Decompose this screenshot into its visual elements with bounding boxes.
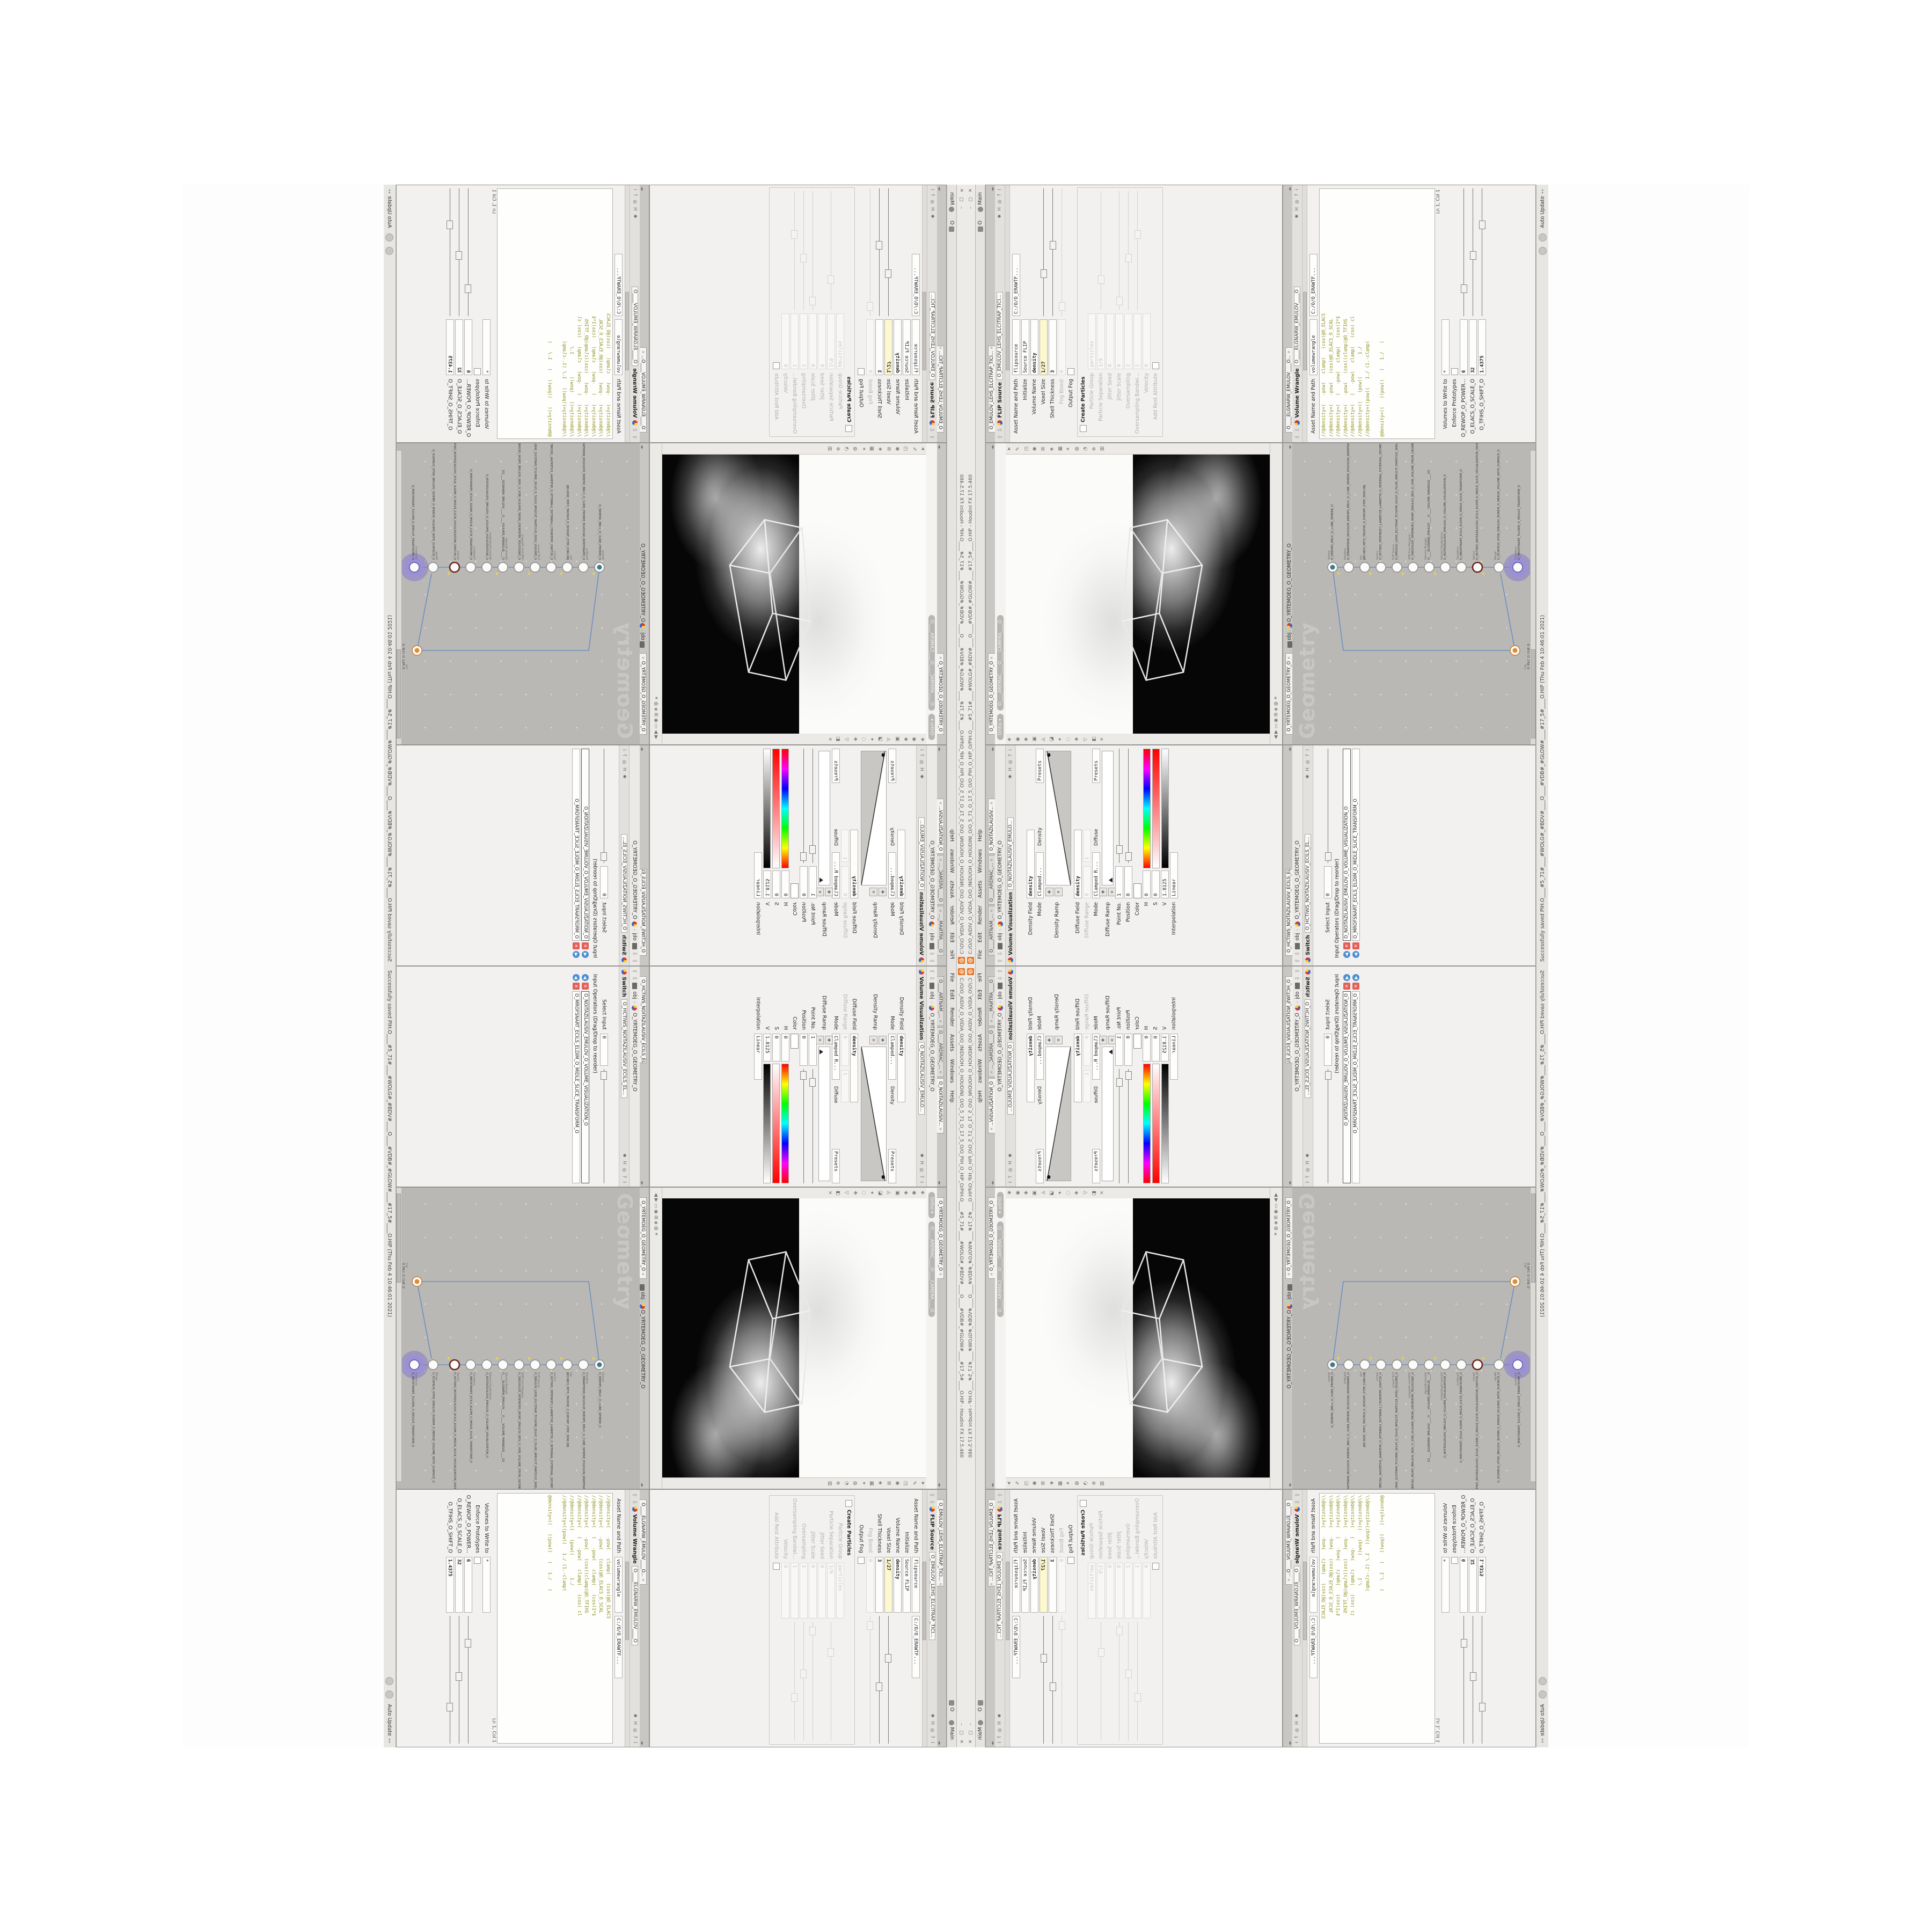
menu-assets[interactable]: Assets [949, 1030, 955, 1056]
menu-windows[interactable]: Windows [949, 1055, 955, 1087]
position-input[interactable]: 0 [1124, 866, 1132, 898]
network-canvas[interactable]: Geometry [397, 1188, 640, 1489]
voxel-size-input[interactable]: 1/27 [884, 1557, 892, 1613]
node-name-field[interactable]: O____ELGNARW_EMULOV____O [632, 1566, 638, 1645]
shell-thickness-input[interactable]: 3 [1049, 1557, 1057, 1613]
close-icon[interactable]: ✕ [938, 858, 942, 861]
pane-tab-mantra[interactable]: O____ARTNAM_...✕ [937, 906, 944, 956]
reorder-icon[interactable]: ◀ [573, 974, 580, 981]
power-slider[interactable] [1460, 188, 1467, 316]
nav-up-icon[interactable]: ⇧ [997, 435, 1004, 440]
update-mode-select[interactable]: Auto Update◂ ▸ [387, 189, 393, 228]
close-icon[interactable]: ✕ [990, 656, 994, 660]
fog-boost-input[interactable]: 0 [866, 1557, 874, 1613]
nav-up-icon[interactable]: ⇧ [997, 1492, 1004, 1497]
network-hscrollbar[interactable] [397, 451, 402, 744]
node-label[interactable]: VDB from PolygonsO_SNOGYLOP_YRTEMOEG_MOR… [517, 443, 524, 560]
node-label[interactable]: FLIP SourceO_EMULOV_LEHS_ELCITRAP_TICILP… [533, 1372, 540, 1489]
node-label[interactable]: FLIP SourceO_EMULOV_LEHS_ELCITRAP_TICILP… [1392, 1372, 1399, 1489]
nav-down-icon[interactable]: ⇩ [997, 976, 1004, 980]
select-input-slider[interactable] [1324, 749, 1331, 863]
position-slider[interactable] [800, 749, 807, 863]
power-input[interactable]: 6 [1460, 319, 1468, 375]
voxel-size-slider[interactable] [885, 188, 892, 316]
node-label[interactable]: SwitchO_HCTIWS_YRTEMOEG_LANRETXE_LANRETN… [1376, 1372, 1383, 1489]
voxel-size-input[interactable]: 1/27 [1040, 1557, 1048, 1613]
node-name-field[interactable]: O_EMULOV_LEHS_ELCITRAP_TICI... [929, 1552, 935, 1640]
delete-icon[interactable]: ✕ [1343, 942, 1350, 949]
menu-edit[interactable]: Edit [949, 986, 955, 1004]
select-input-slider[interactable] [1324, 1069, 1331, 1183]
input-operator-item[interactable]: ◀ ✕ O_MROFSNART_ECILS_ELDIM_O_MIDLE_SLIC… [572, 749, 581, 958]
pane-gadget[interactable]: ◂▸ [937, 1483, 942, 1487]
ramp-add-button[interactable]: ✚ [1045, 1036, 1053, 1044]
menu-render[interactable]: Render [977, 1004, 983, 1030]
asset-name-input[interactable]: flipsource [912, 319, 920, 375]
diffuse-presets-button[interactable]: Presets [1092, 1149, 1100, 1183]
breadcrumb-obj[interactable]: obj [929, 933, 935, 940]
node-label[interactable]: SphereO_EREHPS_EBUC_O_CUBE_SPHERE_O [597, 1372, 604, 1428]
point-slider[interactable] [1116, 749, 1123, 863]
particle-separation-slider[interactable] [1097, 1622, 1104, 1741]
oversampling-slider[interactable] [800, 191, 807, 310]
fog-boost-input[interactable]: 0 [866, 319, 874, 375]
node-name-field[interactable]: O_EMULOV_LEHS_ELCITRAP_TICI... [997, 292, 1003, 380]
close-icon[interactable]: ✕ [990, 802, 994, 805]
node-label[interactable]: Volume VisualizationO_NOITAZILAUSIV_EMUL… [1440, 474, 1447, 560]
menu-help[interactable]: Help [977, 825, 983, 845]
jitter-seed-input[interactable]: 0 [1106, 313, 1114, 369]
scale-slider[interactable] [1469, 1616, 1476, 1744]
oversampling-bandwidth-input[interactable]: 1 [1133, 313, 1141, 369]
param-hscrollbar[interactable] [1302, 185, 1307, 442]
pane-tab-scene[interactable]: O_YRTEMOEG_O_GEOMETRY_O✕ [937, 653, 944, 735]
shift-input[interactable]: 1.4375 [1478, 319, 1486, 375]
close-icon[interactable]: ✕ [1287, 1272, 1291, 1276]
nav-down-icon[interactable]: ⇩ [1294, 976, 1301, 980]
input-operator-item[interactable]: ◀ ✕ O_MROFSNART_ECILS_ELDIM_O_MIDLE_SLIC… [1351, 974, 1360, 1183]
window-buttons[interactable]: – ▢ ✕ [968, 1723, 974, 1745]
close-icon[interactable]: ✕ [990, 1020, 994, 1023]
viewport-right-toolbar[interactable]: ➤ ✎ ◳ ◉ ⊞ ◈ ▦ ✶ ◍ ◔ ⊕ ▥ [1006, 443, 1270, 455]
shift-slider[interactable] [1479, 1616, 1485, 1744]
menu-extra-label[interactable]: O [977, 216, 983, 236]
oversampling-bandwidth-slider[interactable] [1134, 191, 1141, 310]
nav-up-icon[interactable]: ⇧ [997, 969, 1004, 974]
jitter-seed-input[interactable]: 0 [818, 1563, 826, 1619]
position-slider[interactable] [1125, 1069, 1132, 1183]
menu-edit[interactable]: Edit [977, 986, 983, 1004]
asset-name-input[interactable]: volumewrangle [614, 319, 623, 375]
select-input-slider[interactable] [601, 1069, 608, 1183]
velocity-input[interactable]: 0 [781, 313, 789, 369]
velocity-input[interactable]: 0 [781, 1563, 789, 1619]
diffuse-field-input[interactable]: density [850, 830, 858, 898]
close-icon[interactable]: ✕ [938, 1272, 942, 1276]
breadcrumb-obj[interactable]: obj [640, 1292, 646, 1299]
pane-tab-camera[interactable]: O____AREMAC_...✕ [937, 855, 944, 905]
node-label[interactable]: TransformO_MROFSNART_TLUSER_O_RESULT_TRA… [1514, 485, 1521, 560]
point-no-input[interactable]: 1 [809, 866, 817, 898]
ramp-del-button[interactable]: ✕ [816, 888, 824, 896]
nav-down-icon[interactable]: ⇩ [631, 952, 638, 956]
pane-tab-visualization[interactable]: O_NOITAZILAUSIV...✕ [988, 1078, 995, 1134]
oversampling-slider[interactable] [1125, 191, 1132, 310]
power-input[interactable]: 6 [464, 319, 472, 375]
fog-boost-slider[interactable] [867, 188, 874, 316]
close-icon[interactable]: ✕ [938, 909, 942, 912]
network-canvas[interactable]: Geometry [397, 443, 640, 744]
header-icons[interactable]: ✱ H ◎ ? i [1305, 1153, 1311, 1184]
value-slider[interactable] [1161, 1064, 1169, 1183]
desktop-tab-main[interactable]: Main [977, 188, 983, 216]
cook-icon[interactable] [386, 1677, 394, 1685]
viewport-right-toolbar[interactable]: ➤ ✎ ◳ ◉ ⊞ ◈ ▦ ✶ ◍ ◔ ⊕ ▥ [1006, 1477, 1270, 1489]
interpolation-select[interactable]: Linear [1170, 1034, 1178, 1080]
param-hscrollbar[interactable] [922, 185, 927, 442]
voxel-size-input[interactable]: 1/27 [1040, 319, 1048, 375]
nav-down-icon[interactable]: ⇩ [997, 1499, 1004, 1504]
menu-assets[interactable]: Assets [977, 1030, 983, 1056]
pane-gadget[interactable]: ◂▸ [640, 187, 645, 191]
initialize-select[interactable]: Source FLIP [903, 319, 911, 375]
velocity-input[interactable]: 0 [1143, 1563, 1151, 1619]
node-label[interactable]: PolyWireO_EMARFERIW_NOGYLOP_EREHPS_EBUC_… [581, 443, 588, 560]
breadcrumb-geometry[interactable]: O_YRTEMOEG_O_GEOMETRY_O [1294, 840, 1300, 919]
camera-select-pill[interactable]: O____AREMAC____O____CAMERA____O [928, 615, 935, 711]
viewport-canvas[interactable] [662, 454, 926, 734]
memory-icon[interactable] [386, 233, 394, 241]
diffuse-ramp-widget[interactable] [1102, 1046, 1114, 1181]
ramp-del-button[interactable]: ✕ [1055, 1036, 1063, 1044]
ramp-add-button[interactable]: ✚ [1099, 1036, 1107, 1044]
scale-input[interactable]: 32 [455, 319, 463, 375]
asset-name-input[interactable]: flipsource [912, 1557, 920, 1613]
point-no-input[interactable]: 1 [1115, 866, 1123, 898]
input-operator-item[interactable]: ◀ ✕ O_MROFSNART_ECILS_ELDIM_O_MIDLE_SLIC… [1351, 749, 1360, 958]
header-icons[interactable]: ✱ H ◎ ? i [632, 188, 638, 218]
ramp-add-button[interactable]: ✚ [879, 1036, 887, 1044]
nav-up-icon[interactable]: ⇧ [631, 969, 638, 974]
node-label[interactable]: SphereO_EREHPS_EBUC_O_CUBE_SPHERE_O [597, 504, 604, 560]
reorder-icon[interactable]: ◀ [582, 951, 589, 958]
node-label[interactable]: Volume WrangleO____ELGNARW_EMULOV____O__… [1424, 470, 1431, 560]
shell-thickness-input[interactable]: 3 [875, 1557, 883, 1613]
oversampling-bandwidth-input[interactable]: 1 [791, 313, 799, 369]
node-name-field[interactable]: O_NOITAZILAUSIV_EMULO... [1007, 1042, 1014, 1115]
oversampling-input[interactable]: 2 [1124, 1563, 1132, 1619]
close-icon[interactable]: ✕ [641, 1578, 645, 1582]
viewport-right-toolbar[interactable]: ➤ ✎ ◳ ◉ ⊞ ◈ ▦ ✶ ◍ ◔ ⊕ ▥ [662, 443, 926, 455]
voxel-size-slider[interactable] [1040, 188, 1047, 316]
update-mode-select[interactable]: Auto Update◂ ▸ [1540, 1704, 1546, 1743]
shell-thickness-input[interactable]: 3 [1049, 319, 1057, 375]
reorder-icon[interactable]: ◀ [1343, 974, 1350, 981]
pane-gadget[interactable]: ◂▸ [640, 1181, 645, 1185]
menu-render[interactable]: Render [949, 1004, 955, 1030]
jitter-scale-input[interactable]: 0 [809, 1563, 817, 1619]
node-name-field[interactable]: O_HCTIWS_NOITAZILAUSIV_ECILS_EL... [1305, 834, 1311, 933]
nav-down-icon[interactable]: ⇩ [997, 428, 1004, 433]
breadcrumb-geometry[interactable]: O_YRTEMOEG_O_GEOMETRY_O [1294, 1013, 1300, 1092]
asset-path-input[interactable]: C:/O/O_ERAWTF... [1309, 1616, 1318, 1678]
menu-extra-label[interactable]: O [949, 1696, 955, 1716]
menu-file[interactable]: File [949, 946, 955, 963]
hue-slider[interactable] [1143, 1064, 1151, 1183]
breadcrumb-obj[interactable]: obj [632, 933, 638, 940]
pane-gadget[interactable]: ◂▸ [1287, 1181, 1292, 1185]
density-field-input[interactable]: density [1027, 1034, 1035, 1102]
particle-separation-input[interactable]: 1/9 [1097, 313, 1105, 369]
pane-tab-camera[interactable]: O____AREMAC_...✕ [988, 1027, 995, 1077]
shell-thickness-input[interactable]: 3 [875, 319, 883, 375]
menu-help[interactable]: Help [949, 825, 955, 845]
node-label[interactable]: SwitchO_HCTIWS_NOITAZILAUSIV_ECILS_ELDIM… [1473, 443, 1480, 560]
scale-slider[interactable] [456, 188, 463, 316]
node-label[interactable]: PolyWireO_EMARFERIW_NOGYLOP_EREHPS_EBUC_… [1344, 1372, 1351, 1489]
add-rest-checkbox[interactable] [773, 362, 780, 369]
title-bar[interactable]: @ C:/O/O_AIDIV_O_VIDIA_O/O_INIDUOH_O_HOU… [966, 966, 976, 1747]
volume-name-input[interactable]: density [1030, 1557, 1038, 1613]
interpolation-select[interactable]: Linear [754, 852, 762, 898]
input-operator-item[interactable]: ◀ ✕ O_NOITAZILAUSIV_EMULOV_O_VOLUME_VISU… [581, 974, 590, 1183]
breadcrumb-obj[interactable]: obj [997, 991, 1003, 999]
pane-gadget[interactable]: ◂▸ [937, 187, 942, 191]
diffuse-range-min[interactable]: 0 [1083, 1034, 1091, 1066]
pane-gadget[interactable]: ◂▸ [1287, 445, 1292, 449]
power-slider[interactable] [465, 188, 472, 316]
close-icon[interactable]: ✕ [990, 346, 994, 349]
breadcrumb-obj[interactable]: obj [997, 933, 1003, 940]
saturation-input[interactable]: 0 [772, 1034, 780, 1062]
node-name-field[interactable]: O_EMULOV_LEHS_ELCITRAP_TICI... [997, 1552, 1003, 1640]
header-icons[interactable]: ✱ H ◎ ? i [919, 748, 924, 779]
node-label[interactable]: MergeO_ECAFRUS_HTIW_EMULOV_EGREM_O_MERGE… [431, 1372, 438, 1483]
header-icons[interactable]: ✱ H ◎ ? i [1294, 1714, 1300, 1744]
node-label[interactable]: Volume VisualizationO_NOITAZILAUSIV_EMUL… [485, 1372, 492, 1458]
saturation-input[interactable]: 0 [772, 870, 780, 898]
scale-input[interactable]: 32 [1469, 1557, 1477, 1613]
breadcrumb-geometry[interactable]: O_YRTEMOEG_O_GEOMETRY_O [640, 544, 646, 623]
jitter-scale-input[interactable]: 0 [809, 313, 817, 369]
node-label[interactable]: VDB from PolygonsO_SNOGYLOP_YRTEMOEG_MOR… [1408, 1372, 1415, 1489]
shift-slider[interactable] [447, 188, 453, 316]
diffuse-ramp-widget[interactable] [1102, 751, 1114, 885]
density-mode-select[interactable]: Clamped... [1036, 852, 1044, 898]
node-label[interactable]: TransformO_MROFSNART_ECILS_ELDIM_O_MIDLE… [1457, 1372, 1463, 1463]
viewport-canvas[interactable] [1006, 1198, 1270, 1478]
saturation-slider[interactable] [1152, 1064, 1160, 1183]
volumes-to-write-input[interactable]: * [482, 319, 491, 375]
vex-code-editor[interactable]: //@density=( -pow( clamp( (cos(@O_ELACS … [497, 1493, 613, 1744]
node-label[interactable]: Volume VisualizationO_NOITAZILAUSIV_EMUL… [485, 474, 492, 560]
node-label[interactable]: SphereO_EREHPS_EBUC_O_CUBE_SPHERE_O [1328, 1372, 1335, 1428]
nav-up-icon[interactable]: ⇧ [1294, 958, 1301, 963]
point-slider[interactable] [809, 749, 816, 863]
close-icon[interactable]: ✕ [938, 1020, 942, 1023]
saturation-slider[interactable] [1152, 749, 1160, 868]
ortho-view-pill[interactable]: Ortho ▾ [997, 1192, 1004, 1218]
shift-slider[interactable] [447, 1616, 453, 1744]
pane-tab-wrangle[interactable]: O____ELGNARW_EMULOV____O...✕ [640, 1499, 647, 1585]
nav-down-icon[interactable]: ⇩ [929, 428, 936, 433]
breadcrumb-geometry[interactable]: O_YRTEMOEG_O_GEOMETRY_O [1286, 1310, 1292, 1389]
vex-code-editor[interactable]: //@density=( -pow( clamp( (cos(@O_ELACS … [1319, 1493, 1435, 1744]
viewport-canvas[interactable] [1006, 454, 1270, 734]
particle-group-input[interactable]: particles [1088, 1563, 1096, 1619]
create-particles-checkbox[interactable] [846, 1500, 853, 1507]
breadcrumb-obj[interactable]: obj [1286, 632, 1292, 640]
oversampling-bandwidth-slider[interactable] [1134, 1622, 1141, 1741]
pane-tab-visualization[interactable]: O_NOITAZILAUSIV...✕ [988, 799, 995, 854]
pane-tab-flip[interactable]: O_EMULOV_LEHS_ELCITRAP_TICI...✕ [937, 1499, 944, 1586]
density-ramp-widget[interactable] [1045, 751, 1071, 885]
vex-code-editor[interactable]: //@density=( -pow( clamp( (cos(@O_ELACS … [1319, 188, 1435, 439]
scale-slider[interactable] [456, 1616, 463, 1744]
viewport-display-bar[interactable]: ◀ ▶ ▭ ◉ ⊞ ◈ ◍ ✶ [1270, 1188, 1282, 1489]
pane-gadget[interactable]: ◂▸ [640, 1741, 645, 1745]
scale-input[interactable]: 32 [1469, 319, 1477, 375]
pane-tab-switch[interactable]: O_HCTIWS_NOITAZILAUSIV_ECILS_EL...✕ [640, 976, 647, 1063]
fog-boost-input[interactable]: 0 [1058, 1557, 1066, 1613]
output-fog-checkbox[interactable] [858, 368, 865, 375]
breadcrumb-geometry[interactable]: O_YRTEMOEG_O_GEOMETRY_O [640, 1310, 646, 1389]
pane-tab-visualization[interactable]: O_NOITAZILAUSIV...✕ [937, 1078, 944, 1134]
viewport-left-toolbar[interactable]: ◈ ◉ ✚ ▣ ◬ ◪ ✦ ◌ ❖ ▽ ◧ ✕ [662, 1188, 926, 1199]
enforce-prototypes-checkbox[interactable] [1451, 1557, 1458, 1564]
nav-down-icon[interactable]: ⇩ [632, 428, 639, 433]
ortho-view-pill[interactable]: Ortho ▾ [928, 714, 935, 740]
value-slider[interactable] [764, 749, 771, 868]
param-hscrollbar[interactable] [922, 1490, 927, 1747]
ramp-del-button[interactable]: ✕ [869, 888, 877, 896]
particle-separation-input[interactable]: 1/9 [827, 1563, 835, 1619]
select-input-slider[interactable] [601, 749, 608, 863]
node-name-field[interactable]: O____ELGNARW_EMULOV____O [1294, 1566, 1300, 1645]
voxel-size-slider[interactable] [885, 1616, 892, 1744]
close-icon[interactable]: ✕ [641, 1272, 645, 1276]
node-name-field[interactable]: O_EMULOV_LEHS_ELCITRAP_TICI... [929, 292, 935, 380]
hue-slider[interactable] [782, 1064, 789, 1183]
initialize-select[interactable]: Source FLIP [903, 1557, 911, 1613]
close-icon[interactable]: ✕ [938, 802, 942, 805]
breadcrumb-geometry[interactable]: O_YRTEMOEG_O_GEOMETRY_O [1286, 544, 1292, 623]
nav-up-icon[interactable]: ⇧ [997, 958, 1004, 963]
output-fog-checkbox[interactable] [858, 1557, 865, 1564]
value-input[interactable]: 1.8125 [1161, 1034, 1169, 1062]
diffuse-presets-button[interactable]: Presets [832, 749, 840, 783]
menu-edit[interactable]: Edit [977, 928, 983, 946]
reorder-icon[interactable]: ◀ [1352, 974, 1359, 981]
particle-group-input[interactable]: particles [836, 313, 844, 369]
diffuse-field-input[interactable]: density [1074, 830, 1082, 898]
breadcrumb-geometry[interactable]: O_YRTEMOEG_O_GEOMETRY_O [929, 840, 935, 919]
node-label[interactable]: TransformO_MROFSNART_TLUSER_O_RESULT_TRA… [411, 1372, 418, 1447]
node-label[interactable]: MergeO_ECAFRUS_HTIW_EMULOV_EGREM_O_MERGE… [1494, 1372, 1501, 1483]
node-label[interactable]: FLIP SourceO_EMULOV_LEHS_ELCITRAP_TICILP… [1392, 443, 1399, 560]
nav-up-icon[interactable]: ⇧ [929, 1492, 936, 1497]
density-presets-button[interactable]: Presets [888, 749, 896, 783]
shell-thickness-slider[interactable] [876, 1616, 883, 1744]
viewport-canvas[interactable] [662, 1198, 926, 1478]
create-particles-checkbox[interactable] [846, 425, 853, 432]
node-label[interactable]: VDB from PolygonsO_SNOGYLOP_YRTEMOEG_MOR… [1408, 443, 1415, 560]
asset-path-input[interactable]: C:/O/O_ERAWTF... [912, 1616, 920, 1678]
node-label[interactable]: SphereO_EREHPS_EBUC_O_CUBE_SPHERE_O [1328, 504, 1335, 560]
nav-down-icon[interactable]: ⇩ [1294, 952, 1301, 956]
window-buttons[interactable]: – ▢ ✕ [959, 1723, 964, 1745]
asset-name-input[interactable]: volumewrangle [1309, 319, 1318, 375]
nav-up-icon[interactable]: ⇧ [929, 435, 936, 440]
camera-select-pill[interactable]: O____AREMAC____O____CAMERA____O [928, 1221, 935, 1317]
saturation-input[interactable]: 0 [1152, 870, 1160, 898]
title-bar[interactable]: @ C:/O/O_AIDIV_O_VIDIA_O/O_INIDUOH_O_HOU… [956, 966, 966, 1747]
node-label[interactable]: FLIP SourceO_EMULOV_LEHS_ELCITRAP_TICILP… [533, 443, 540, 560]
close-icon[interactable]: ✕ [938, 656, 942, 660]
color-swatch[interactable] [1133, 883, 1141, 898]
delete-icon[interactable]: ✕ [573, 942, 580, 949]
jitter-seed-input[interactable]: 0 [818, 313, 826, 369]
jitter-scale-slider[interactable] [809, 191, 816, 310]
cook-icon[interactable] [386, 247, 394, 255]
oversampling-bandwidth-input[interactable]: 1 [791, 1563, 799, 1619]
saturation-slider[interactable] [773, 749, 780, 868]
menu-windows[interactable]: Windows [977, 845, 983, 877]
asset-name-input[interactable]: flipsource [1012, 1557, 1020, 1613]
menu-edit[interactable]: Edit [949, 928, 955, 946]
diffuse-presets-button[interactable]: Presets [832, 1149, 840, 1183]
node-label[interactable]: SwitchO_HCTIWS_YRTEMOEG_LANRETXE_LANRETN… [1376, 443, 1383, 560]
pane-gadget[interactable]: ◂▸ [990, 1181, 995, 1185]
value-input[interactable]: 1.8125 [763, 870, 771, 898]
pane-tab-mantra[interactable]: O____ARTNAM_...✕ [988, 976, 995, 1026]
param-hscrollbar[interactable] [1005, 185, 1010, 442]
node-label[interactable]: MergeO_ECAFRUS_HTIW_EMULOV_EGREM_O_MERGE… [431, 449, 438, 560]
pane-tab-switch[interactable]: O_HCTIWS_NOITAZILAUSIV_ECILS_EL...✕ [1285, 976, 1292, 1063]
jitter-scale-slider[interactable] [809, 1622, 816, 1741]
menu-file[interactable]: File [949, 969, 955, 986]
pane-gadget[interactable]: ◂▸ [1287, 1483, 1292, 1487]
pane-tab-wrangle[interactable]: O____ELGNARW_EMULOV____O...✕ [1285, 1499, 1292, 1585]
add-rest-checkbox[interactable] [1152, 362, 1159, 369]
color-swatch[interactable] [791, 883, 799, 898]
menu-render[interactable]: Render [949, 902, 955, 928]
close-icon[interactable]: ✕ [990, 1583, 994, 1586]
create-particles-checkbox[interactable] [1080, 425, 1087, 432]
point-slider[interactable] [809, 1069, 816, 1183]
breadcrumb-obj[interactable]: obj [1294, 991, 1300, 999]
pane-gadget[interactable]: ◂▸ [640, 747, 645, 751]
density-presets-button[interactable]: Presets [1036, 749, 1044, 783]
node-name-field[interactable]: O_HCTIWS_NOITAZILAUSIV_ECILS_EL... [1305, 999, 1311, 1098]
pane-tab-network[interactable]: O_YRTEMOEG_O_GEOMETRY_O✕ [1285, 1197, 1292, 1279]
shift-input[interactable]: 1.4375 [446, 1557, 454, 1613]
pane-tab-switch[interactable]: O_HCTIWS_NOITAZILAUSIV_ECILS_EL...✕ [640, 869, 647, 956]
breadcrumb-geometry[interactable]: O_YRTEMOEG_O_GEOMETRY_O [997, 1013, 1003, 1092]
saturation-slider[interactable] [773, 1064, 780, 1183]
diffuse-range-max[interactable]: 1 [841, 1070, 849, 1102]
input-operator-item[interactable]: ◀ ✕ O_NOITAZILAUSIV_EMULOV_O_VOLUME_VISU… [581, 749, 590, 958]
position-input[interactable]: 0 [800, 866, 808, 898]
power-slider[interactable] [465, 1616, 472, 1744]
density-presets-button[interactable]: Presets [888, 1149, 896, 1183]
menu-windows[interactable]: Windows [949, 845, 955, 877]
asset-path-input[interactable]: C:/O/O_ERAWTF... [614, 1616, 623, 1678]
scale-slider[interactable] [1469, 188, 1476, 316]
initialize-select[interactable]: Source FLIP [1021, 1557, 1029, 1613]
menu-help[interactable]: Help [977, 1087, 983, 1107]
node-name-field[interactable]: O_NOITAZILAUSIV_EMULO... [918, 1042, 925, 1115]
